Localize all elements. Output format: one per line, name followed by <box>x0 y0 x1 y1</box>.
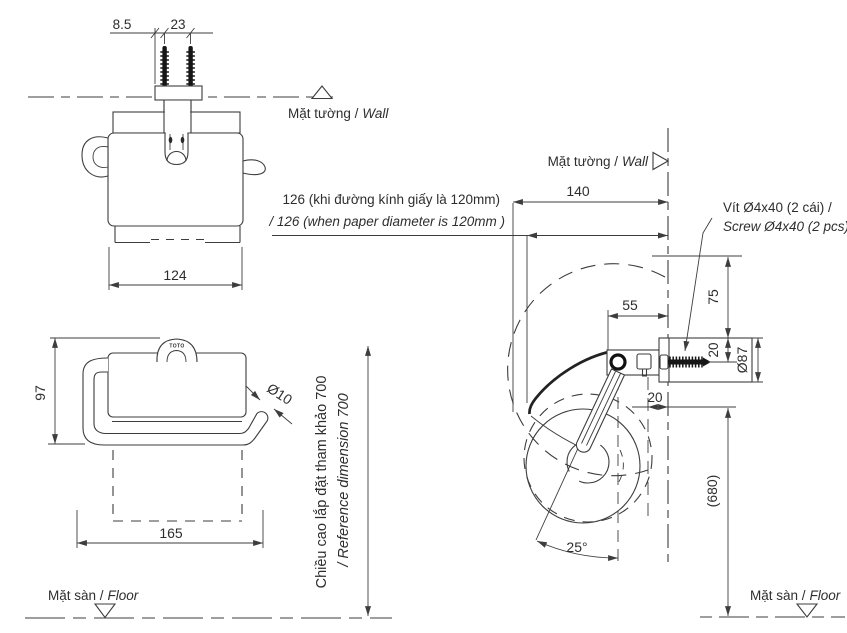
dim-140-label: 140 <box>566 183 590 199</box>
dim-680-label: (680) <box>704 475 720 508</box>
floor-datum-triangle-left <box>95 604 115 618</box>
cover-front-view <box>108 353 246 417</box>
dim-87-ext <box>752 338 763 382</box>
screw-note-vi: Vít Ø4x40 (2 cái) / <box>723 200 832 215</box>
mount-plate <box>155 86 202 100</box>
depth-ext-lines <box>513 203 527 412</box>
dia10-arrow-upper <box>246 386 260 400</box>
front-view: TOTO Ø10 97 165 <box>32 338 295 548</box>
paper-holder-drawing: 8.5 23 1 <box>0 0 847 633</box>
floor-right: Mặt sàn /Floor <box>700 588 845 617</box>
dia10-arrow-lower <box>274 409 292 424</box>
left-hook-top-view <box>82 137 108 177</box>
roll-circle-solid <box>526 409 640 523</box>
hidden-roll-rect <box>113 450 242 521</box>
dim-75-label: 75 <box>705 289 721 305</box>
dim-124-label: 124 <box>163 267 187 283</box>
side-view: 25° Vít Ø4x40 (2 cái) / Screw Ø4x40 (2 p… <box>508 128 847 616</box>
floor-label-left: Mặt sàn /Floor <box>48 588 139 603</box>
dim-23-label: 23 <box>170 17 185 32</box>
height-note-en: / Reference dimension 700 <box>336 393 352 567</box>
floor-datum-triangle-right <box>797 604 817 617</box>
top-view: 8.5 23 1 <box>28 17 389 290</box>
screw-leader <box>685 218 712 351</box>
screw-dot-right <box>181 137 185 143</box>
pivot-ring <box>611 355 625 369</box>
wall-datum-triangle-side <box>653 153 668 170</box>
roll-circle-120mm <box>524 394 652 522</box>
height-note-vi: Chiều cao lắp đặt tham khảo 700 <box>313 376 330 589</box>
wall-label-top: Mặt tường /Wall <box>288 106 389 121</box>
screw-note-en: Screw Ø4x40 (2 pcs) <box>723 219 847 234</box>
technical-drawing-page: 8.5 23 1 <box>0 0 847 633</box>
paper-note-en: / 126 (when paper diameter is 120mm ) <box>268 214 505 229</box>
stem-fill-2 <box>165 101 190 133</box>
height-note: Chiều cao lắp đặt tham khảo 700 / Refere… <box>313 346 368 616</box>
brand-logo: TOTO <box>169 344 184 350</box>
notch-fill <box>166 128 188 162</box>
floor-left: Mặt sàn /Floor <box>25 588 392 618</box>
dim-126-arrow-right <box>658 233 668 239</box>
paper-note-vi: 126 (khi đường kính giấy là 120mm) <box>283 192 501 207</box>
dim-126-arrow-left <box>527 233 537 239</box>
dim-165-label: 165 <box>159 525 183 541</box>
dim-20-back-label: 20 <box>647 390 662 405</box>
screw-dot-left <box>169 137 173 143</box>
dim-55-label: 55 <box>622 297 638 313</box>
dim-dia87-label: Ø87 <box>734 347 750 374</box>
lower-strip <box>115 226 240 243</box>
floor-label-right: Mặt sàn /Floor <box>750 588 841 603</box>
dim-8-5-label: 8.5 <box>113 17 132 32</box>
boss-block <box>637 354 651 369</box>
wall-datum-triangle-top <box>312 86 332 99</box>
paper-note: 126 (khi đường kính giấy là 120mm) / 126… <box>268 192 668 239</box>
dim-dia10-label: Ø10 <box>264 380 295 408</box>
right-lever <box>243 160 265 175</box>
wall-label-side: Mặt tường /Wall <box>548 154 649 169</box>
dim-20-right-label: 20 <box>706 342 721 357</box>
roll-inner-arc <box>616 450 623 486</box>
dim-25deg-label: 25° <box>566 539 587 555</box>
dim-97-label: 97 <box>32 385 48 401</box>
